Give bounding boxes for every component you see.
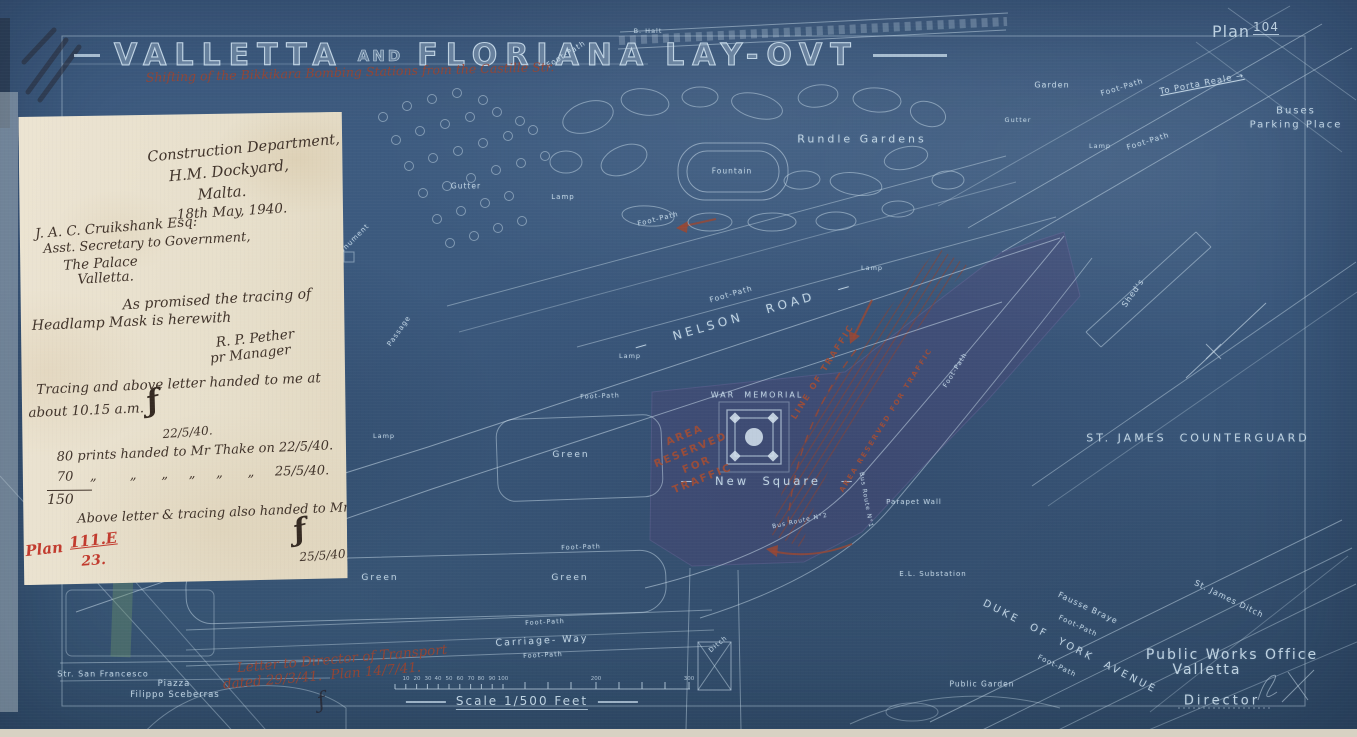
map-label: Gutter xyxy=(1005,116,1032,124)
letter-text-line: 70 „ „ „ „ „ „ 25/5/40. xyxy=(57,463,330,485)
letter-red-plan-ref: 111.E xyxy=(68,529,118,552)
letter-text-line: Malta. xyxy=(197,182,247,204)
plan-num: 104 xyxy=(1253,20,1279,35)
scale-dash xyxy=(598,701,638,703)
letter-text-line: 150 xyxy=(47,490,92,508)
map-label: Lamp xyxy=(861,264,883,272)
scale-tick: 70 xyxy=(468,676,475,682)
scale-tick: 80 xyxy=(478,676,485,682)
map-label: B. Halt xyxy=(634,27,663,35)
title-dash xyxy=(873,54,947,57)
map-label: Rundle Gardens xyxy=(797,133,926,146)
map-label: WAR MEMORIAL xyxy=(711,391,804,400)
blueprint-canvas: VALLETTA AND FLORIANA LAY-OVT Plan104 Fo… xyxy=(0,0,1357,737)
map-label: Lamp xyxy=(373,432,395,440)
scale-caption: Scale 1/500 Feet xyxy=(406,694,638,710)
map-label: Garden xyxy=(1034,81,1069,90)
map-label: Director xyxy=(1184,694,1260,709)
scale-tick: 90 xyxy=(489,676,496,682)
title-word-and: AND xyxy=(358,47,404,65)
letter-red-plan-ref: 23. xyxy=(81,552,107,570)
letter-text-line: 22/5/40. xyxy=(162,423,213,441)
letter-text-line: Above letter & tracing also handed to Mr… xyxy=(77,498,394,526)
scale-tick: 30 xyxy=(425,676,432,682)
letter-text-line: 80 prints handed to Mr Thake on 22/5/40. xyxy=(56,438,333,465)
letter-text-line: 25/5/40. xyxy=(299,546,350,564)
map-label: Lamp xyxy=(551,193,574,201)
scale-dash xyxy=(406,701,446,703)
map-label: Lamp xyxy=(619,352,641,360)
scale-label: Scale 1/500 Feet xyxy=(456,694,588,710)
map-label: Buses xyxy=(1276,106,1316,117)
letter-red-plan-ref: Plan xyxy=(24,538,63,560)
map-label: Green xyxy=(552,450,589,460)
map-label: Parapet Wall xyxy=(886,498,942,506)
title-word: LAY-OVT xyxy=(665,38,859,73)
letter-text-line: Headlamp Mask is herewith xyxy=(32,310,232,334)
scale-tick: 300 xyxy=(684,676,695,682)
letter-text-line: Tracing and above letter handed to me at xyxy=(36,370,321,398)
map-label: Green xyxy=(361,573,398,583)
map-label: E.L. Substation xyxy=(899,570,966,578)
map-label: Fountain xyxy=(712,167,753,176)
scale-tick: 100 xyxy=(498,676,509,682)
map-label: Green xyxy=(551,573,588,583)
corner-marks xyxy=(24,30,79,100)
map-label: Parking Place xyxy=(1250,120,1343,131)
map-label: Filippo Sceberras xyxy=(130,690,219,700)
worn-left-edge xyxy=(0,92,18,712)
scale-tick: 200 xyxy=(591,676,602,682)
scale-tick: 20 xyxy=(414,676,421,682)
letter-text-line: about 10.15 a.m. xyxy=(28,400,144,421)
map-label: ST. JAMES COUNTERGUARD xyxy=(1086,432,1310,445)
map-label: Gutter xyxy=(451,182,481,191)
blueprint-sheet: VALLETTA AND FLORIANA LAY-OVT Plan104 Fo… xyxy=(0,0,1357,729)
scale-tick: 40 xyxy=(435,676,442,682)
scale-tick: 50 xyxy=(446,676,453,682)
letter-initials: ƒ xyxy=(290,512,310,549)
plan-number: Plan104 xyxy=(1212,20,1279,41)
scale-tick: 60 xyxy=(457,676,464,682)
map-label: Lamp xyxy=(1089,142,1111,150)
scale-tick: 10 xyxy=(403,676,410,682)
green-pencil-strip xyxy=(111,572,134,658)
attached-letter: Construction Department,H.M. Dockyard,Ma… xyxy=(18,112,347,585)
map-label: Str. San Francesco xyxy=(57,670,149,679)
map-label: Public Works Office xyxy=(1146,647,1318,663)
map-label: Piazza xyxy=(158,679,191,689)
plan-prefix: Plan xyxy=(1212,22,1250,41)
letter-text-line: Valletta. xyxy=(77,268,134,287)
map-label: Public Garden xyxy=(949,680,1014,689)
map-label: Foot-Path xyxy=(580,391,620,400)
map-label: Valletta xyxy=(1172,662,1241,678)
title-dash xyxy=(74,54,100,57)
map-label: Foot-Path xyxy=(561,542,601,551)
